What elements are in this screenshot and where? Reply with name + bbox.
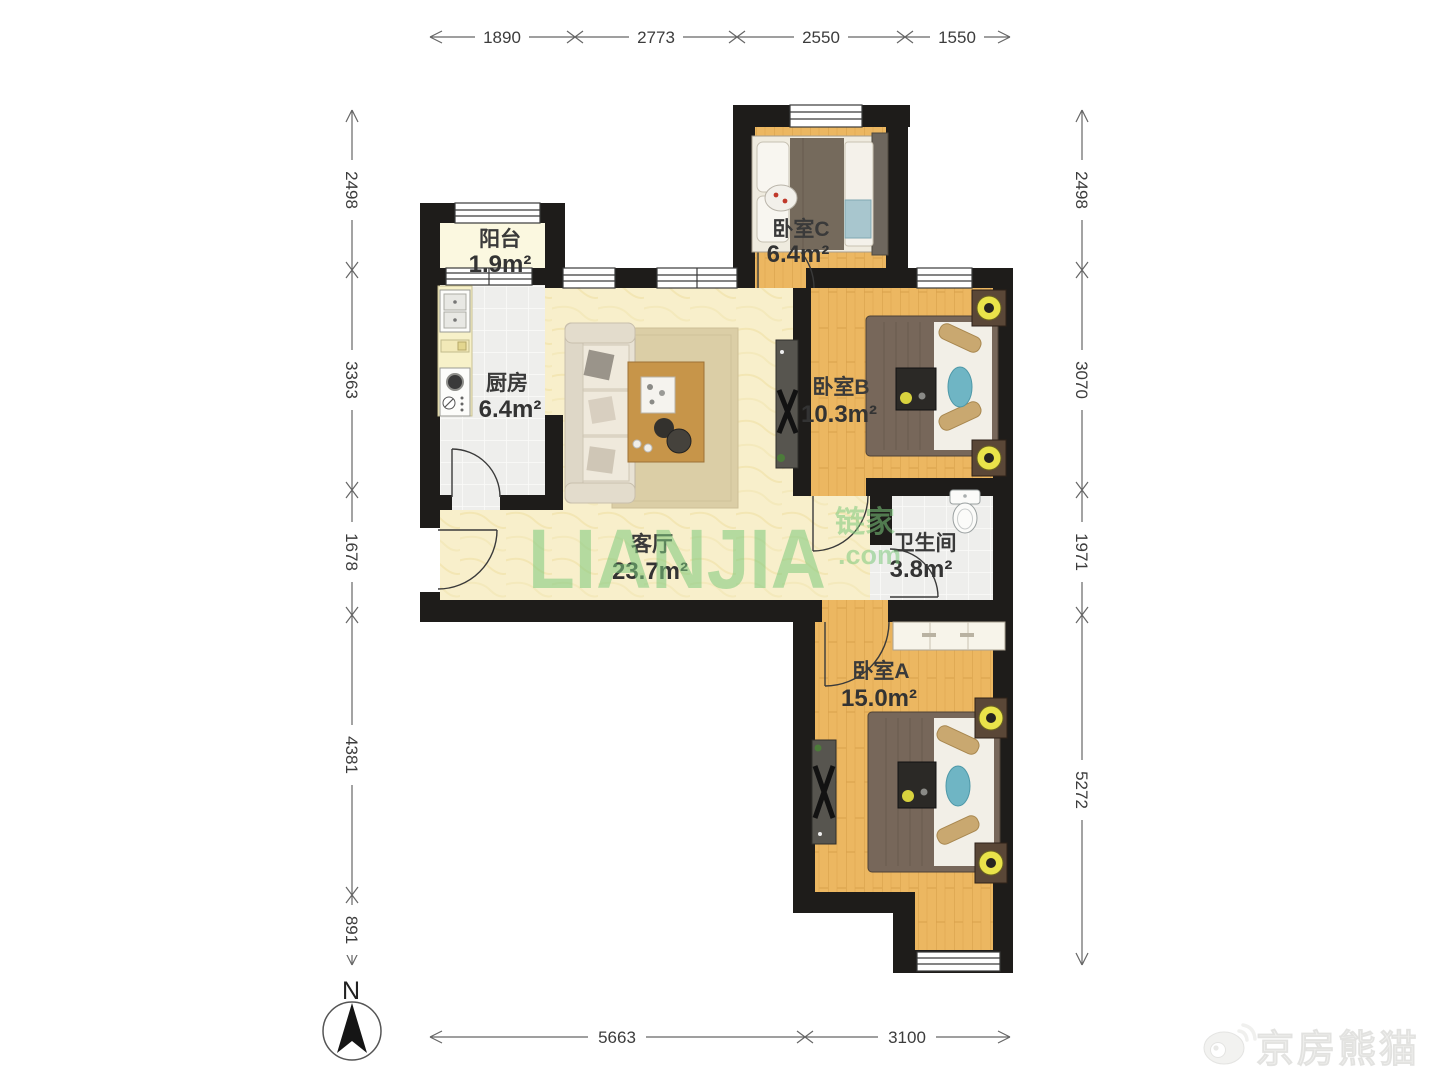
room-area-kitchen: 6.4m² bbox=[479, 396, 542, 423]
dim-bottom-2: 3100 bbox=[888, 1028, 926, 1047]
dim-top-2: 2773 bbox=[637, 28, 675, 47]
kitchen-stove bbox=[440, 368, 470, 416]
floor-plan-page: 阳台 1.9m² 厨房 6.4m² 客厅 23.7m² 卧室C 6.4m² 卧室… bbox=[0, 0, 1440, 1080]
kitchen-sink bbox=[440, 290, 470, 332]
coffee-table bbox=[628, 362, 704, 462]
room-label-bedroom-c: 卧室C bbox=[772, 217, 829, 241]
dim-right-1: 2498 bbox=[1072, 171, 1091, 209]
dim-left-5: 891 bbox=[342, 916, 361, 944]
dim-right-2: 3070 bbox=[1072, 361, 1091, 399]
room-area-bedroom-a: 15.0m² bbox=[841, 685, 917, 712]
dim-left-3: 1678 bbox=[342, 533, 361, 571]
balcony-window bbox=[455, 203, 540, 223]
nightstand-a-top bbox=[975, 698, 1007, 738]
bed-double-b bbox=[866, 316, 998, 456]
bedroom-a-window bbox=[917, 952, 1000, 971]
dim-left-2: 3363 bbox=[342, 361, 361, 399]
dim-left-4: 4381 bbox=[342, 736, 361, 774]
room-label-bathroom: 卫生间 bbox=[894, 531, 957, 555]
nightstand-b-bottom bbox=[972, 440, 1006, 476]
dim-top-1: 1890 bbox=[483, 28, 521, 47]
dim-top-3: 2550 bbox=[802, 28, 840, 47]
lianjia-brand-text: LIANJIA bbox=[528, 512, 826, 606]
dim-right-3: 1971 bbox=[1072, 533, 1091, 571]
tv-cabinet-a bbox=[812, 740, 836, 844]
tv-cabinet-living bbox=[776, 340, 798, 468]
compass-icon: N bbox=[323, 977, 381, 1060]
dim-left-1: 2498 bbox=[342, 171, 361, 209]
room-label-bedroom-a: 卧室A bbox=[852, 659, 909, 683]
jingfang-panda-watermark: 京房熊猫 bbox=[1204, 1025, 1420, 1071]
bedroom-c-window bbox=[790, 105, 862, 127]
room-label-balcony: 阳台 bbox=[479, 227, 521, 251]
room-label-bedroom-b: 卧室B bbox=[812, 375, 869, 399]
dim-right-4: 5272 bbox=[1072, 771, 1091, 809]
living-room-window-2 bbox=[657, 268, 737, 288]
nightstand-b-top bbox=[972, 290, 1006, 326]
bedroom-b-window bbox=[917, 268, 972, 288]
compass-north-label: N bbox=[342, 977, 360, 1005]
room-label-kitchen: 厨房 bbox=[486, 371, 528, 395]
credit-text: 京房熊猫 bbox=[1256, 1029, 1420, 1071]
sofa bbox=[565, 323, 635, 503]
nightstand-a-bottom bbox=[975, 843, 1007, 883]
lianjia-com-text: .com bbox=[838, 540, 901, 570]
floor-plan-svg: 阳台 1.9m² 厨房 6.4m² 客厅 23.7m² 卧室C 6.4m² 卧室… bbox=[0, 0, 1440, 1080]
wardrobe-a bbox=[893, 622, 1005, 650]
lianjia-cn-text: 链家 bbox=[835, 505, 895, 539]
room-area-bedroom-b: 10.3m² bbox=[801, 401, 877, 428]
dim-bottom-1: 5663 bbox=[598, 1028, 636, 1047]
kitchen-counter bbox=[438, 286, 472, 416]
room-area-bedroom-c: 6.4m² bbox=[767, 241, 830, 268]
living-room-window-1 bbox=[563, 268, 615, 288]
room-area-balcony: 1.9m² bbox=[469, 251, 532, 278]
dim-top-4: 1550 bbox=[938, 28, 976, 47]
weibo-icon bbox=[1204, 1025, 1255, 1064]
